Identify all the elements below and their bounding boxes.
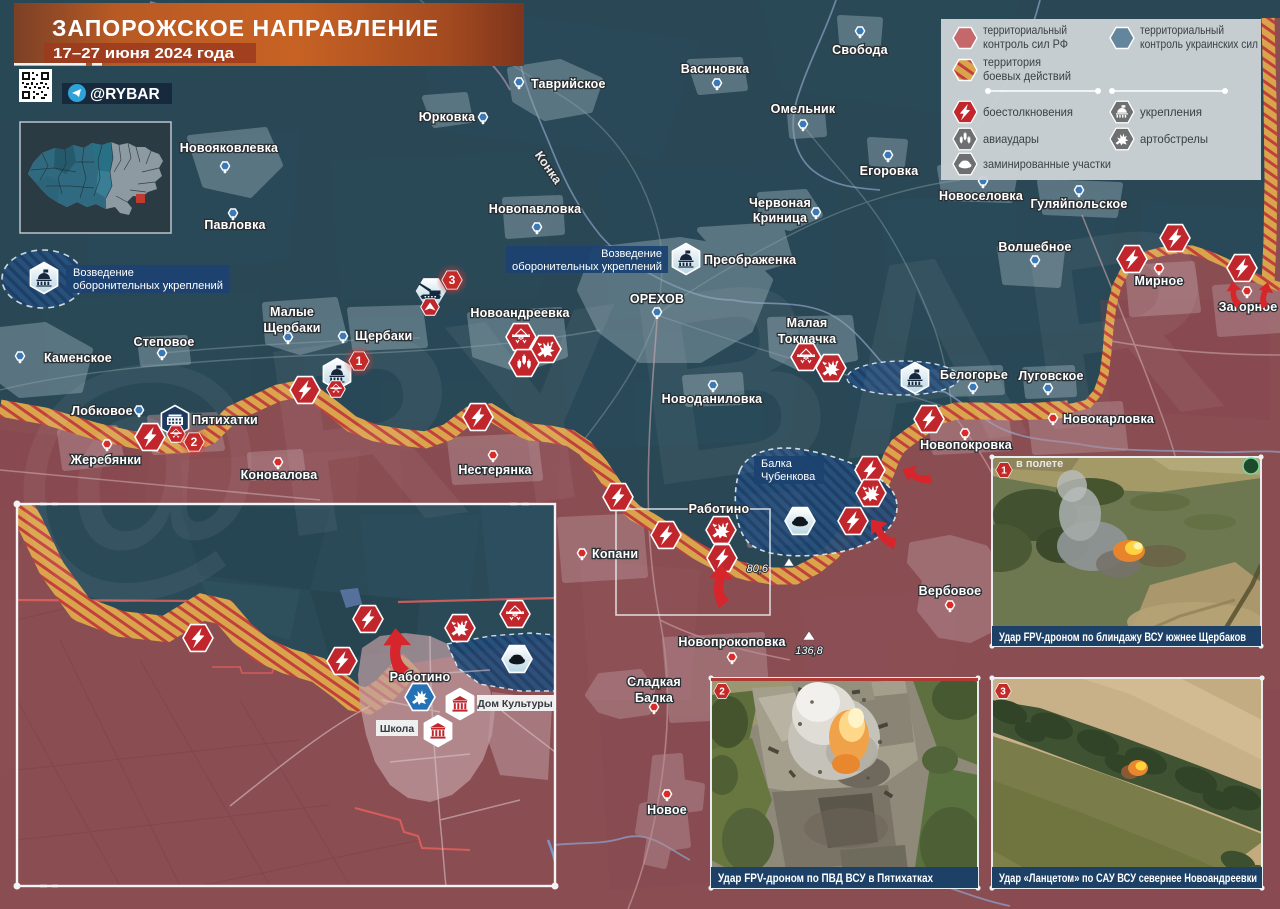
svg-text:ОРЕХОВ: ОРЕХОВ [630, 292, 684, 306]
svg-text:Егоровка: Егоровка [860, 164, 920, 178]
svg-text:территория: территория [983, 55, 1041, 69]
svg-text:80,6: 80,6 [747, 563, 769, 575]
svg-text:Новоандреевка: Новоандреевка [470, 306, 570, 320]
svg-text:Новопавловка: Новопавловка [489, 202, 582, 216]
svg-text:Щербаки: Щербаки [263, 321, 320, 335]
svg-text:Удар FPV-дроном по ПВД ВСУ в П: Удар FPV-дроном по ПВД ВСУ в Пятихатках [718, 871, 933, 885]
svg-text:Преображенка: Преображенка [704, 253, 797, 267]
svg-text:Щербаки: Щербаки [355, 329, 412, 343]
svg-text:Загорное: Загорное [1219, 300, 1278, 314]
svg-text:Чубенкова: Чубенкова [761, 471, 816, 483]
svg-text:3: 3 [1000, 687, 1006, 698]
svg-text:17–27 июня 2024 года: 17–27 июня 2024 года [53, 45, 235, 62]
svg-text:Гуляйпольское: Гуляйпольское [1030, 197, 1127, 211]
svg-text:боевых действий: боевых действий [983, 69, 1071, 83]
svg-text:Копани: Копани [592, 547, 638, 561]
svg-text:Балка: Балка [761, 458, 793, 470]
svg-text:Удар «Ланцетом» по САУ ВСУ сев: Удар «Ланцетом» по САУ ВСУ севернее Ново… [999, 871, 1257, 885]
svg-text:Васиновка: Васиновка [681, 62, 750, 76]
svg-text:оборонительных укреплений: оборонительных укреплений [512, 261, 662, 273]
svg-text:боестолкновения: боестолкновения [983, 105, 1073, 119]
svg-text:Юрковка: Юрковка [419, 110, 476, 124]
svg-text:Белогорье: Белогорье [940, 368, 1008, 382]
svg-text:Луговское: Луговское [1018, 369, 1083, 383]
svg-text:авиаудары: авиаудары [983, 132, 1039, 146]
svg-text:2: 2 [191, 435, 198, 449]
svg-text:контроль украинских сил: контроль украинских сил [1140, 37, 1258, 51]
svg-text:Дом Культуры: Дом Культуры [477, 698, 552, 710]
svg-text:Возведение: Возведение [73, 267, 134, 279]
svg-text:Новопокровка: Новопокровка [920, 438, 1013, 452]
svg-text:1: 1 [1001, 466, 1007, 477]
svg-text:Работино: Работино [390, 670, 451, 684]
svg-text:@RYBAR: @RYBAR [90, 86, 160, 103]
svg-text:Новокарловка: Новокарловка [1063, 412, 1155, 426]
svg-text:Степовое: Степовое [134, 335, 195, 349]
svg-text:Новопрокоповка: Новопрокоповка [678, 635, 786, 649]
svg-text:Жеребянки: Жеребянки [70, 453, 142, 467]
svg-text:ЗАПОРОЖСКОЕ НАПРАВЛЕНИЕ: ЗАПОРОЖСКОЕ НАПРАВЛЕНИЕ [52, 15, 439, 41]
svg-text:Школа: Школа [380, 723, 414, 735]
svg-text:Омельник: Омельник [771, 102, 836, 116]
svg-text:Возведение: Возведение [601, 248, 662, 260]
svg-text:Криница: Криница [753, 211, 808, 225]
svg-text:территориальный: территориальный [983, 23, 1067, 37]
svg-text:укрепления: укрепления [1140, 105, 1202, 119]
svg-text:Коновалова: Коновалова [241, 468, 319, 482]
svg-text:Нестерянка: Нестерянка [458, 463, 532, 477]
svg-text:Работино: Работино [689, 502, 750, 516]
svg-text:Червоная: Червоная [749, 196, 811, 210]
svg-text:Новоданиловка: Новоданиловка [662, 392, 764, 406]
svg-text:1: 1 [356, 354, 363, 368]
svg-text:Свобода: Свобода [832, 43, 889, 57]
svg-text:Пятихатки: Пятихатки [192, 413, 258, 427]
svg-text:Мирное: Мирное [1134, 274, 1183, 288]
svg-text:Волшебное: Волшебное [998, 240, 1071, 254]
svg-text:в полете: в полете [1016, 458, 1063, 470]
svg-text:Сладкая: Сладкая [627, 675, 681, 689]
svg-text:оборонительных укреплений: оборонительных укреплений [73, 280, 223, 292]
svg-text:Вербовое: Вербовое [919, 584, 982, 598]
svg-text:2: 2 [719, 687, 725, 698]
svg-text:Новоселовка: Новоселовка [939, 189, 1024, 203]
svg-text:Каменское: Каменское [44, 351, 112, 365]
svg-text:Павловка: Павловка [204, 218, 266, 232]
svg-text:136,8: 136,8 [795, 645, 823, 657]
svg-text:артобстрелы: артобстрелы [1140, 132, 1208, 146]
svg-text:территориальный: территориальный [1140, 23, 1224, 37]
svg-text:Новое: Новое [647, 803, 687, 817]
svg-text:3: 3 [449, 273, 456, 287]
svg-text:Новояковлевка: Новояковлевка [180, 141, 279, 155]
svg-text:Удар FPV-дроном по блиндажу ВС: Удар FPV-дроном по блиндажу ВСУ южнее Ще… [999, 630, 1246, 644]
svg-text:Лобковое: Лобковое [71, 404, 133, 418]
svg-text:заминированные участки: заминированные участки [983, 157, 1111, 171]
svg-text:Малые: Малые [270, 305, 314, 319]
svg-text:Малая: Малая [787, 316, 828, 330]
svg-text:контроль сил РФ: контроль сил РФ [983, 37, 1068, 51]
svg-text:Таврийское: Таврийское [531, 77, 606, 91]
